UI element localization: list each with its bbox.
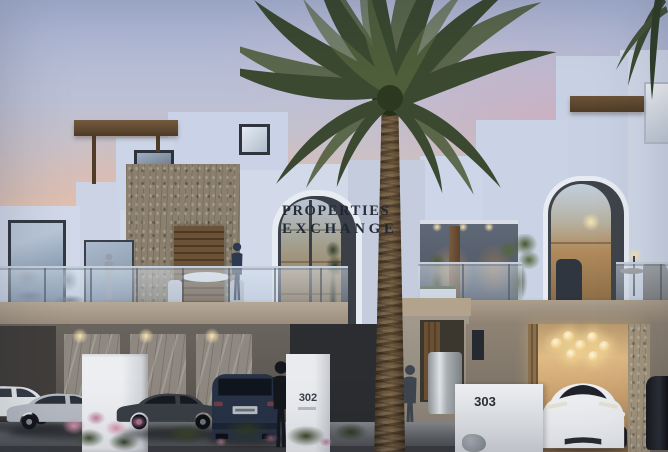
watermark: PROPERTIES EXCHANGE — [282, 202, 397, 238]
carport-downlight — [204, 328, 220, 344]
arch-303-lamp-glow — [582, 213, 600, 231]
address-number-302: 302 — [293, 392, 323, 404]
flower-bed-left — [44, 404, 164, 452]
palm-base-foliage — [146, 412, 376, 452]
carport-downlight — [72, 328, 88, 344]
watermark-line-2: EXCHANGE — [282, 220, 397, 238]
chandelier-bulb — [563, 331, 574, 342]
chandelier-bulb — [566, 349, 577, 360]
chandelier-bulb — [551, 338, 562, 349]
balcony-railing-302 — [0, 266, 348, 306]
palm-corner-fronds — [592, 0, 668, 126]
chandelier-bulb — [588, 351, 599, 362]
car-black-edge — [646, 376, 668, 450]
address-number-303: 303 — [467, 394, 503, 409]
chandelier-bulb — [599, 341, 610, 352]
property-photo: 302 303 — [0, 0, 668, 452]
slot-window-303 — [472, 330, 484, 360]
carport-downlight — [138, 328, 154, 344]
fascia-band-302 — [0, 302, 348, 326]
porch-ceiling — [393, 298, 471, 316]
watermark-line-1: PROPERTIES — [282, 202, 397, 220]
chandelier-bulb — [575, 340, 586, 351]
chandelier-bulb — [587, 332, 598, 343]
house-302-pergola — [74, 120, 178, 136]
pergola-post — [92, 134, 96, 184]
address-plaque-smudge — [298, 407, 316, 410]
pergola-post — [156, 134, 160, 152]
car-white-tesla-front — [537, 364, 629, 450]
balcony-lamp-glow — [628, 248, 642, 262]
grey-bag — [462, 434, 486, 452]
arch-303-chair-silhouette — [556, 259, 582, 303]
